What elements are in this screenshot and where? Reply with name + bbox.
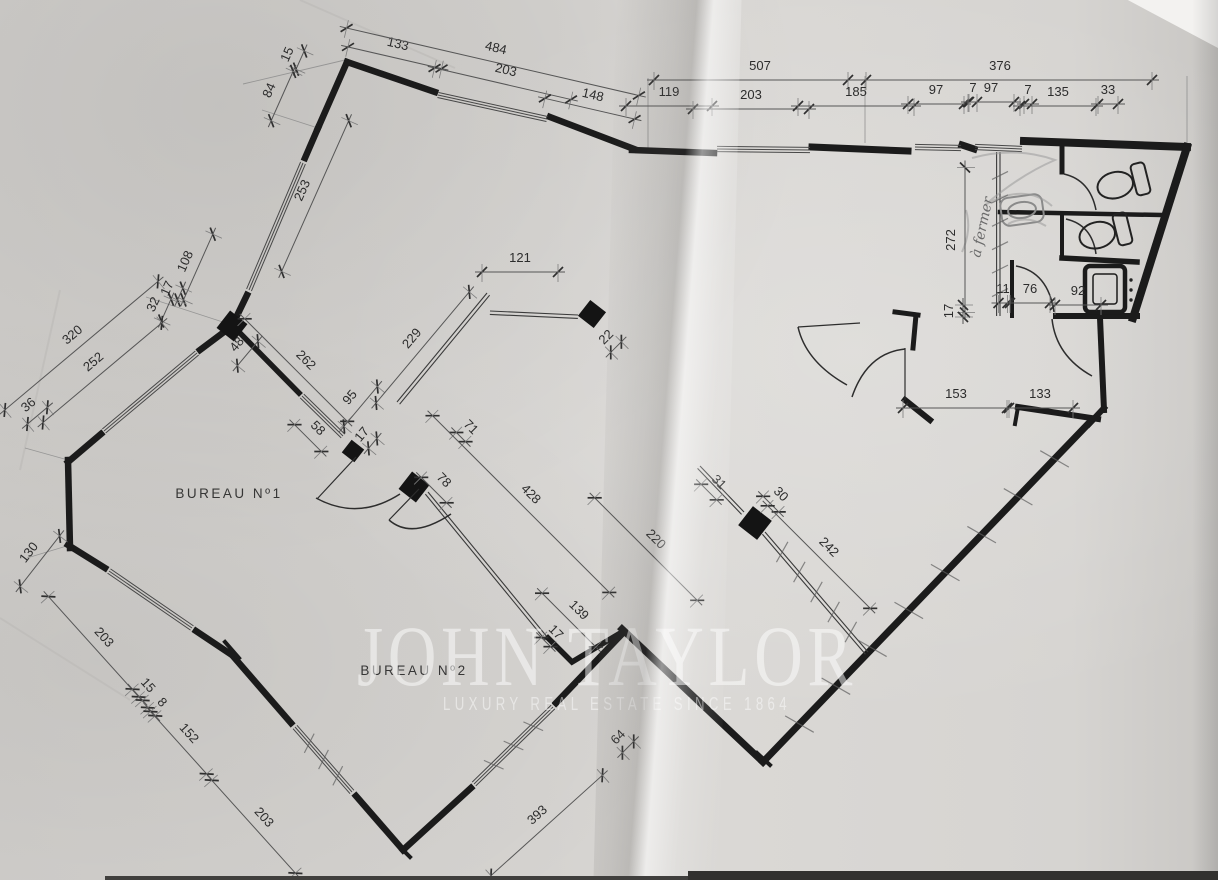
- dimension-label: 84: [259, 81, 279, 100]
- dimension: 253: [259, 105, 361, 282]
- watermark-title: JOHN TAYLOR: [357, 608, 857, 704]
- dimension-label: 185: [845, 84, 867, 99]
- dimension-label: 121: [509, 250, 531, 265]
- dimension-label: 108: [174, 248, 197, 274]
- dimension-label: 95: [339, 387, 360, 408]
- dimension-label: 8: [154, 694, 170, 709]
- dimension: 262: [233, 298, 368, 433]
- dimension-label: 148: [581, 85, 606, 104]
- dimension: 153: [896, 386, 1016, 418]
- watermark-subtitle: LUXURY REAL ESTATE SINCE 1864: [443, 694, 791, 714]
- dimension-label: 393: [524, 802, 550, 828]
- dimension: 152: [138, 692, 227, 786]
- outer-walls: [68, 62, 1187, 857]
- dimension-label: 17: [351, 424, 372, 445]
- dimension-label: 11: [996, 281, 1010, 296]
- dimension-label: 133: [386, 34, 411, 53]
- dimension-label: 31: [709, 471, 730, 492]
- dimension: 252: [24, 301, 174, 434]
- dimension-label: 253: [291, 177, 314, 203]
- dimension: 203: [686, 87, 816, 119]
- scanned-floor-plan: 1584253108173213348420314850737611920318…: [0, 0, 1218, 880]
- dimension: 119: [619, 84, 719, 116]
- dimension-label: 203: [252, 804, 278, 830]
- dimension-label: 203: [92, 624, 118, 650]
- floor-plan-svg: 1584253108173213348420314850737611920318…: [0, 0, 1218, 880]
- dimension-label: 428: [518, 481, 544, 507]
- dimension: 393: [471, 754, 614, 880]
- dimension: 203: [200, 760, 317, 880]
- dimension: 229: [355, 272, 482, 414]
- toilet-icon: [1076, 212, 1133, 255]
- interior-walls: [240, 143, 1160, 662]
- dimension: 507: [647, 58, 873, 90]
- dimension-label: 30: [771, 483, 792, 504]
- dimension-label: 17: [157, 279, 177, 298]
- dimension: 428: [421, 395, 630, 604]
- dimension-label: 153: [945, 386, 967, 401]
- dimension-label: 71: [461, 416, 482, 437]
- dimension-label: 33: [1101, 82, 1115, 97]
- dimension: 64: [602, 721, 646, 765]
- dimension: 133: [339, 24, 453, 80]
- dimension-label: 130: [16, 539, 41, 565]
- dimension-label: 64: [607, 726, 628, 747]
- dimension-label: 22: [595, 326, 616, 347]
- dimension: 22: [590, 321, 633, 364]
- dimension: 58: [282, 404, 341, 463]
- dimension-label: 152: [177, 720, 203, 746]
- dimension-label: 17: [941, 304, 956, 318]
- dimension-label: 7: [969, 80, 976, 95]
- dimension-label: 119: [659, 84, 680, 99]
- dimension-label: 7: [1024, 82, 1031, 97]
- dimension-label: 58: [308, 417, 329, 438]
- dimension: 17: [941, 298, 973, 324]
- dimension: 130: [0, 517, 72, 598]
- dimension-label: 242: [816, 534, 842, 560]
- columns: [217, 300, 772, 540]
- dimension-label: 272: [943, 229, 958, 251]
- dimension-label: 15: [277, 45, 297, 64]
- dimension-label: 97: [984, 80, 998, 95]
- dimension-label: 507: [749, 58, 771, 73]
- dimension-layer: 1584253108173213348420314850737611920318…: [0, 5, 1159, 880]
- dimension-label: 76: [1023, 281, 1037, 296]
- dimension-label: 97: [929, 82, 943, 97]
- room-label-bureau-1: BUREAU Nº1: [175, 486, 282, 501]
- dimension-label: 92: [1071, 283, 1085, 298]
- dimension: 121: [475, 250, 565, 282]
- paper-creases: [0, 0, 455, 700]
- dimension-label: 262: [293, 347, 319, 373]
- dimension-label: 78: [434, 469, 455, 490]
- dimension-label: 203: [740, 87, 762, 102]
- dimension-label: 135: [1047, 84, 1069, 99]
- dimension-label: 203: [494, 60, 519, 79]
- dimension: 7: [962, 80, 984, 112]
- dimension-label: 15: [138, 675, 159, 696]
- scan-edge-bottom: [688, 871, 1218, 880]
- dimension-label: 320: [59, 322, 85, 347]
- dimension: 71: [444, 412, 486, 454]
- dimension-label: 133: [1029, 386, 1051, 401]
- dimension-label: 484: [484, 38, 509, 57]
- dimension: 272: [943, 161, 975, 320]
- toilet-icon: [1094, 162, 1151, 205]
- dimension-label: 376: [989, 58, 1011, 73]
- dimension-label: 229: [399, 325, 424, 351]
- dimension-label: 252: [80, 349, 106, 374]
- dimension-label: 220: [643, 526, 669, 552]
- dimension: 185: [791, 84, 921, 116]
- dimension: 31: [689, 464, 737, 512]
